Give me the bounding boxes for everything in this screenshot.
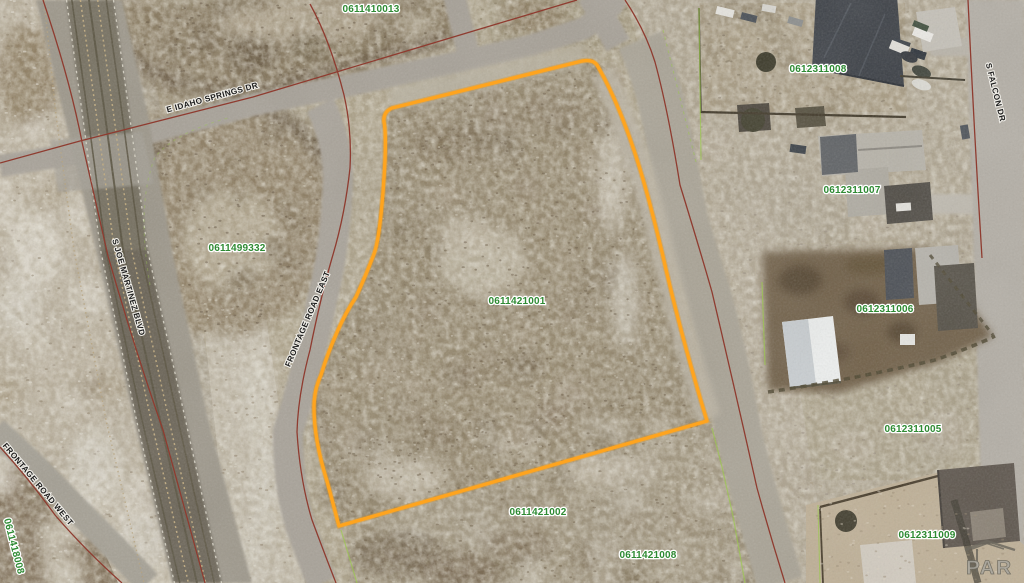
svg-text:0612311009: 0612311009 [898, 530, 955, 541]
svg-text:0611410013: 0611410013 [342, 4, 399, 15]
svg-text:0612311005: 0612311005 [884, 424, 941, 435]
svg-text:PAR: PAR [966, 558, 1013, 579]
svg-text:0612311006: 0612311006 [856, 304, 913, 315]
svg-text:0612311007: 0612311007 [823, 185, 880, 196]
svg-text:0611421002: 0611421002 [509, 507, 566, 518]
svg-text:0611421008: 0611421008 [619, 550, 676, 561]
svg-text:0612311008: 0612311008 [789, 64, 846, 75]
svg-text:0611499332: 0611499332 [208, 243, 265, 254]
svg-text:0611421001: 0611421001 [488, 296, 545, 307]
